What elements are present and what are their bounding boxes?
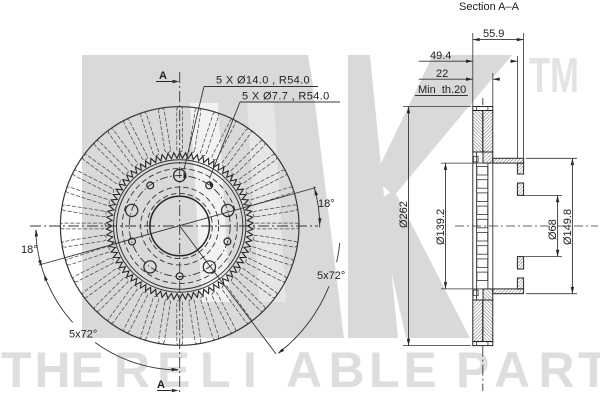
- svg-text:5 X Ø7.7 , R54.0: 5 X Ø7.7 , R54.0: [242, 91, 330, 103]
- svg-text:18°: 18°: [318, 198, 335, 210]
- svg-text:Section A–A: Section A–A: [459, 1, 520, 13]
- svg-text:Min th.20: Min th.20: [418, 84, 466, 96]
- svg-text:5x72°: 5x72°: [69, 329, 97, 341]
- svg-text:THERELIABLEPART: THERELIABLEPART: [1, 342, 600, 398]
- svg-text:5 X Ø14.0 , R54.0: 5 X Ø14.0 , R54.0: [216, 75, 310, 87]
- svg-text:55.9: 55.9: [483, 28, 504, 40]
- svg-text:A: A: [157, 379, 165, 391]
- svg-text:49.4: 49.4: [430, 50, 451, 62]
- svg-text:18°: 18°: [21, 244, 38, 256]
- svg-text:TM: TM: [529, 49, 579, 103]
- svg-text:22: 22: [436, 68, 448, 80]
- svg-text:A: A: [159, 70, 167, 82]
- svg-text:5x72°: 5x72°: [317, 270, 345, 282]
